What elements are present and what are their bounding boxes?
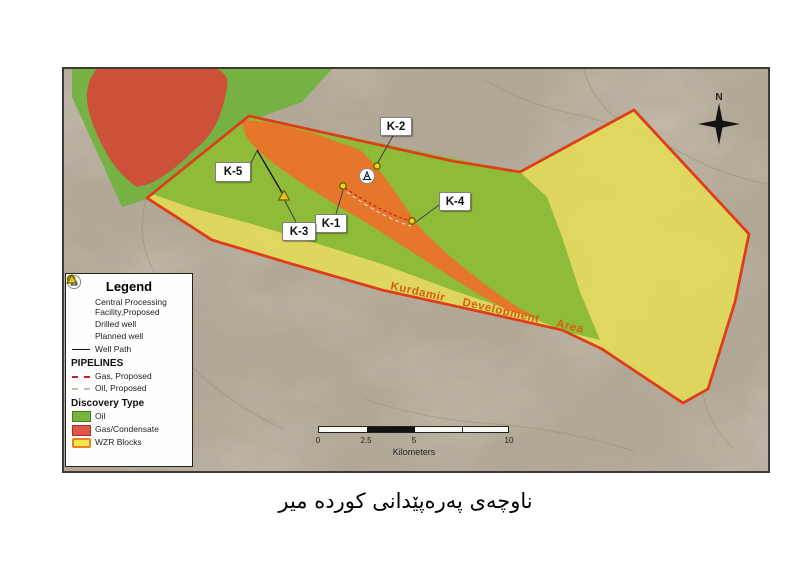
gas-pipeline-label: Gas, Proposed [91,372,152,382]
cpf-label-line1: Central Processing [95,297,167,307]
legend-box: Legend Central Processing Facility,Propo… [65,273,193,467]
callout-k3-label: K-3 [290,226,309,238]
legend-item-drilled-well: Drilled well [71,320,187,330]
callout-k5-label: K-5 [224,166,243,178]
callout-k4: K-4 [439,192,471,211]
scale-bar: 0 2.5 5 10 Kilometers [318,426,509,433]
legend-item-gas-condensate: Gas/Condensate [71,425,187,436]
scale-tick-2-5: 2.5 [360,436,371,445]
compass-n-label: N [715,92,722,103]
well-k1-marker [340,183,346,189]
scale-bar-graphic [318,426,509,433]
legend-item-cpf: Central Processing Facility,Proposed [71,298,187,318]
legend-pipelines-header: PIPELINES [71,358,187,369]
callout-k1: K-1 [315,214,347,233]
legend-item-oil: Oil [71,411,187,422]
map-canvas: Kurdamir Development Area [62,67,770,473]
well-path-label: Well Path [91,345,131,355]
legend-item-oil-pipeline: Oil, Proposed [71,384,187,394]
scale-tick-10: 10 [505,436,514,445]
scale-tick-5: 5 [412,436,416,445]
oil-pipeline-icon [71,388,91,390]
well-k2-marker [374,163,380,169]
planned-well-label: Planned well [91,332,143,342]
well-k4-marker [409,218,415,224]
scale-bar-divider [462,427,463,432]
well-path-icon [71,349,91,350]
gas-condensate-label: Gas/Condensate [91,425,159,435]
drilled-well-label: Drilled well [91,320,136,330]
callout-k2: K-2 [380,117,412,136]
page: Kurdamir Development Area [0,0,811,564]
scale-bar-black-segment [367,427,415,432]
legend-item-cpf-label: Central Processing Facility,Proposed [91,298,167,318]
scale-tick-0: 0 [316,436,320,445]
legend-item-planned-well: Planned well [71,332,187,342]
wzr-swatch [71,438,91,448]
callout-k1-label: K-1 [322,218,341,230]
cpf-label-line2: Facility,Proposed [95,307,160,317]
legend-discovery-header: Discovery Type [71,398,187,409]
scale-unit-label: Kilometers [393,447,436,457]
cpf-marker [360,169,375,184]
wzr-blocks-label: WZR Blocks [91,438,142,448]
map-caption: ناوچەی پەرەپێدانی کوردە میر [0,489,811,513]
oil-pipeline-label: Oil, Proposed [91,384,147,394]
legend-item-well-path: Well Path [71,345,187,355]
legend-item-wzr-blocks: WZR Blocks [71,438,187,448]
gas-swatch [71,425,91,436]
callout-k4-label: K-4 [446,196,465,208]
callout-k5: K-5 [215,162,251,182]
callout-k2-label: K-2 [387,121,406,133]
legend-title: Legend [71,279,187,294]
oil-label: Oil [91,412,105,422]
callout-k3: K-3 [282,222,316,241]
oil-swatch [71,411,91,422]
legend-item-gas-pipeline: Gas, Proposed [71,372,187,382]
gas-pipeline-icon [71,376,91,378]
